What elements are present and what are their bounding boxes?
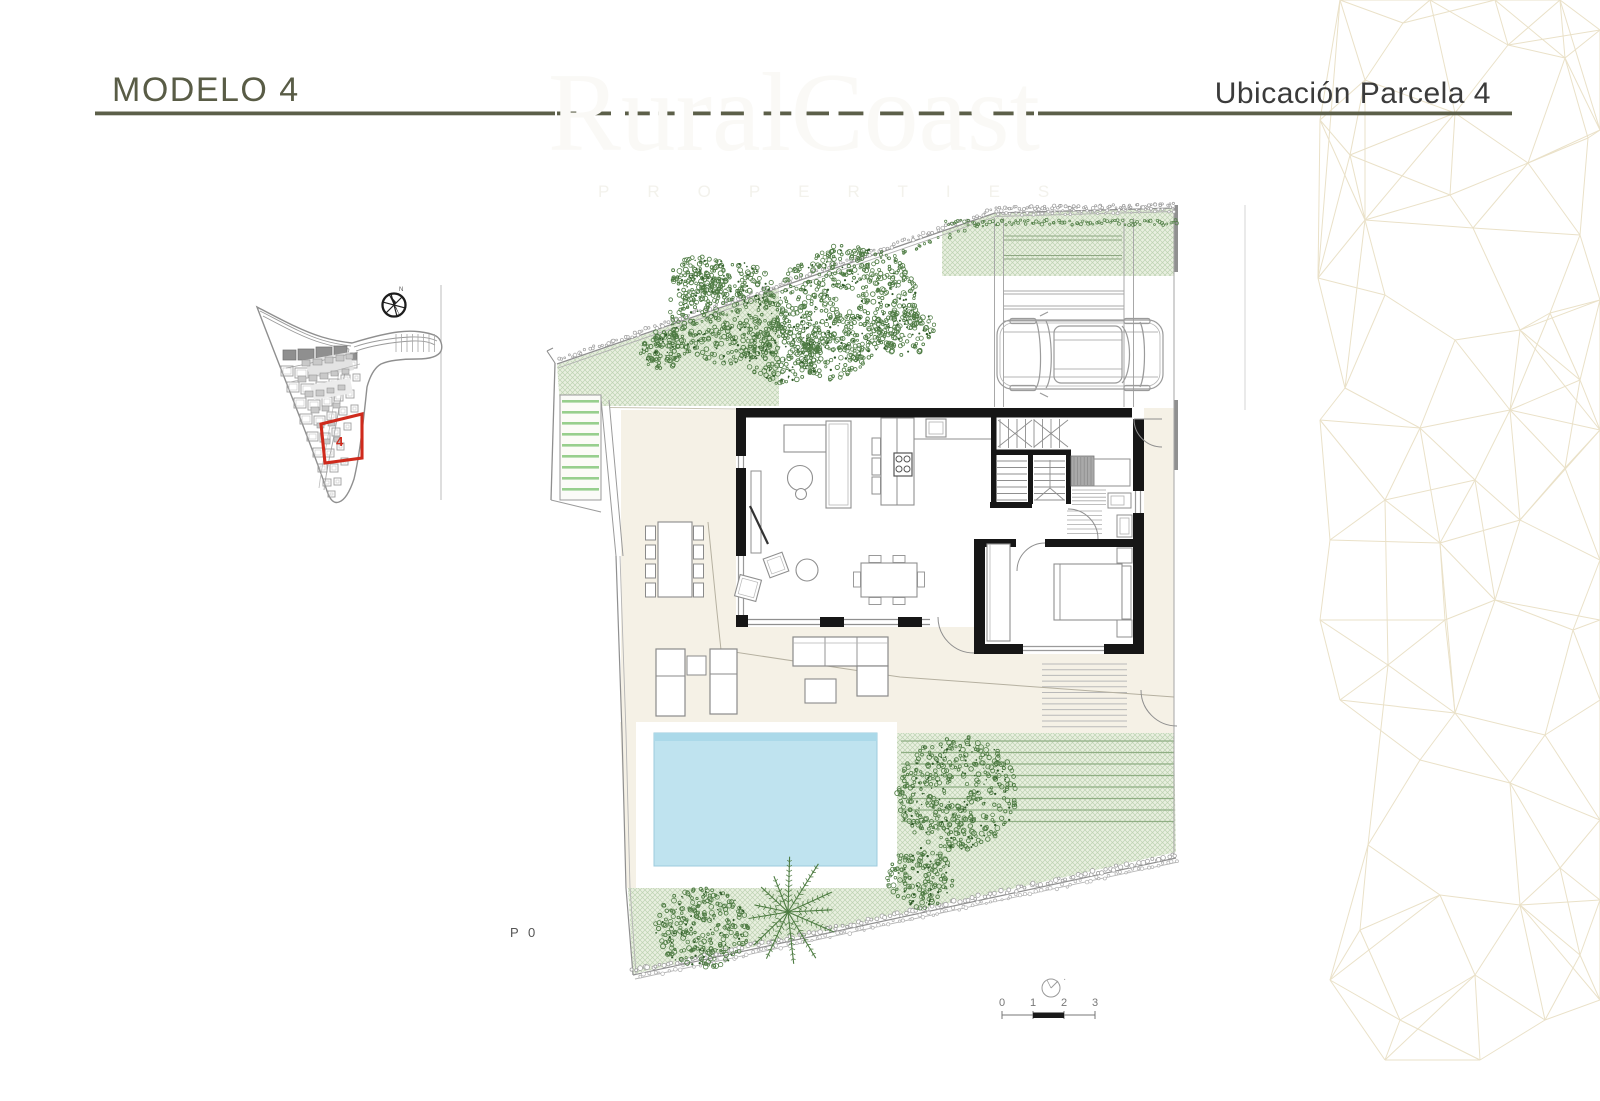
svg-text:1: 1 — [1030, 997, 1036, 1009]
svg-text:3: 3 — [1092, 997, 1098, 1009]
svg-text:MODELO 4: MODELO 4 — [112, 71, 300, 109]
svg-text:N: N — [399, 287, 403, 293]
svg-text:P 0: P 0 — [510, 925, 538, 940]
svg-text:·: · — [1063, 974, 1066, 985]
svg-text:2: 2 — [1061, 997, 1067, 1009]
svg-text:Ubicación Parcela 4: Ubicación Parcela 4 — [1215, 77, 1491, 110]
svg-text:0: 0 — [999, 997, 1005, 1009]
svg-text:PROPERTIES: PROPERTIES — [598, 182, 1087, 201]
svg-text:RuralCoast: RuralCoast — [548, 51, 1040, 175]
svg-text:4: 4 — [336, 434, 344, 449]
